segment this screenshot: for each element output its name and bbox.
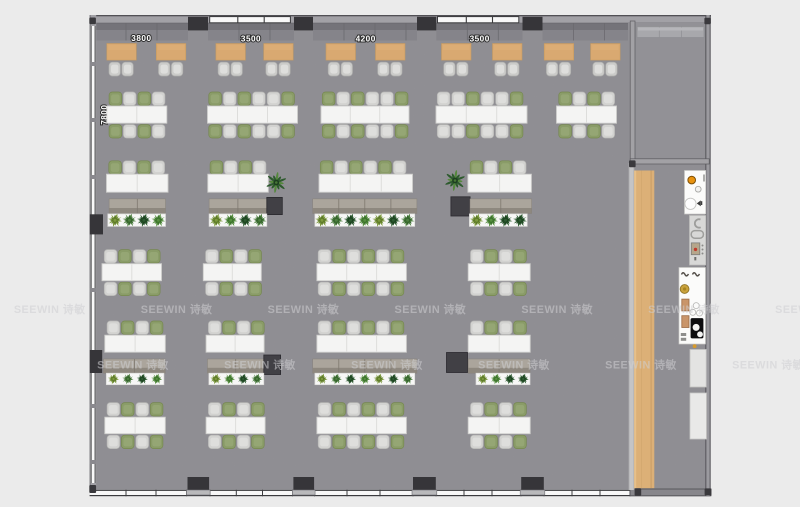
svg-text:3800: 3800 <box>131 34 151 43</box>
svg-text:SEEWIN 诗敏: SEEWIN 诗敏 <box>775 302 800 316</box>
svg-text:SEEWIN 诗敏: SEEWIN 诗敏 <box>14 302 86 316</box>
svg-text:SEEWIN 诗敏: SEEWIN 诗敏 <box>141 302 213 316</box>
svg-text:SEEWIN 诗敏: SEEWIN 诗敏 <box>648 302 720 316</box>
svg-text:3500: 3500 <box>241 34 261 43</box>
svg-text:SEEWIN 诗敏: SEEWIN 诗敏 <box>224 357 296 371</box>
svg-text:4200: 4200 <box>356 35 376 44</box>
svg-text:SEEWIN 诗敏: SEEWIN 诗敏 <box>268 302 340 316</box>
svg-text:SEEWIN 诗敏: SEEWIN 诗敏 <box>351 357 423 371</box>
svg-text:SEEWIN 诗敏: SEEWIN 诗敏 <box>521 302 593 316</box>
svg-text:3500: 3500 <box>470 35 490 44</box>
svg-text:SEEWIN 诗敏: SEEWIN 诗敏 <box>478 357 550 371</box>
svg-text:SEEWIN 诗敏: SEEWIN 诗敏 <box>605 357 677 371</box>
svg-text:SEEWIN 诗敏: SEEWIN 诗敏 <box>395 302 467 316</box>
svg-text:SEEWIN 诗敏: SEEWIN 诗敏 <box>97 357 169 371</box>
svg-text:SEEWIN 诗敏: SEEWIN 诗敏 <box>732 357 800 371</box>
